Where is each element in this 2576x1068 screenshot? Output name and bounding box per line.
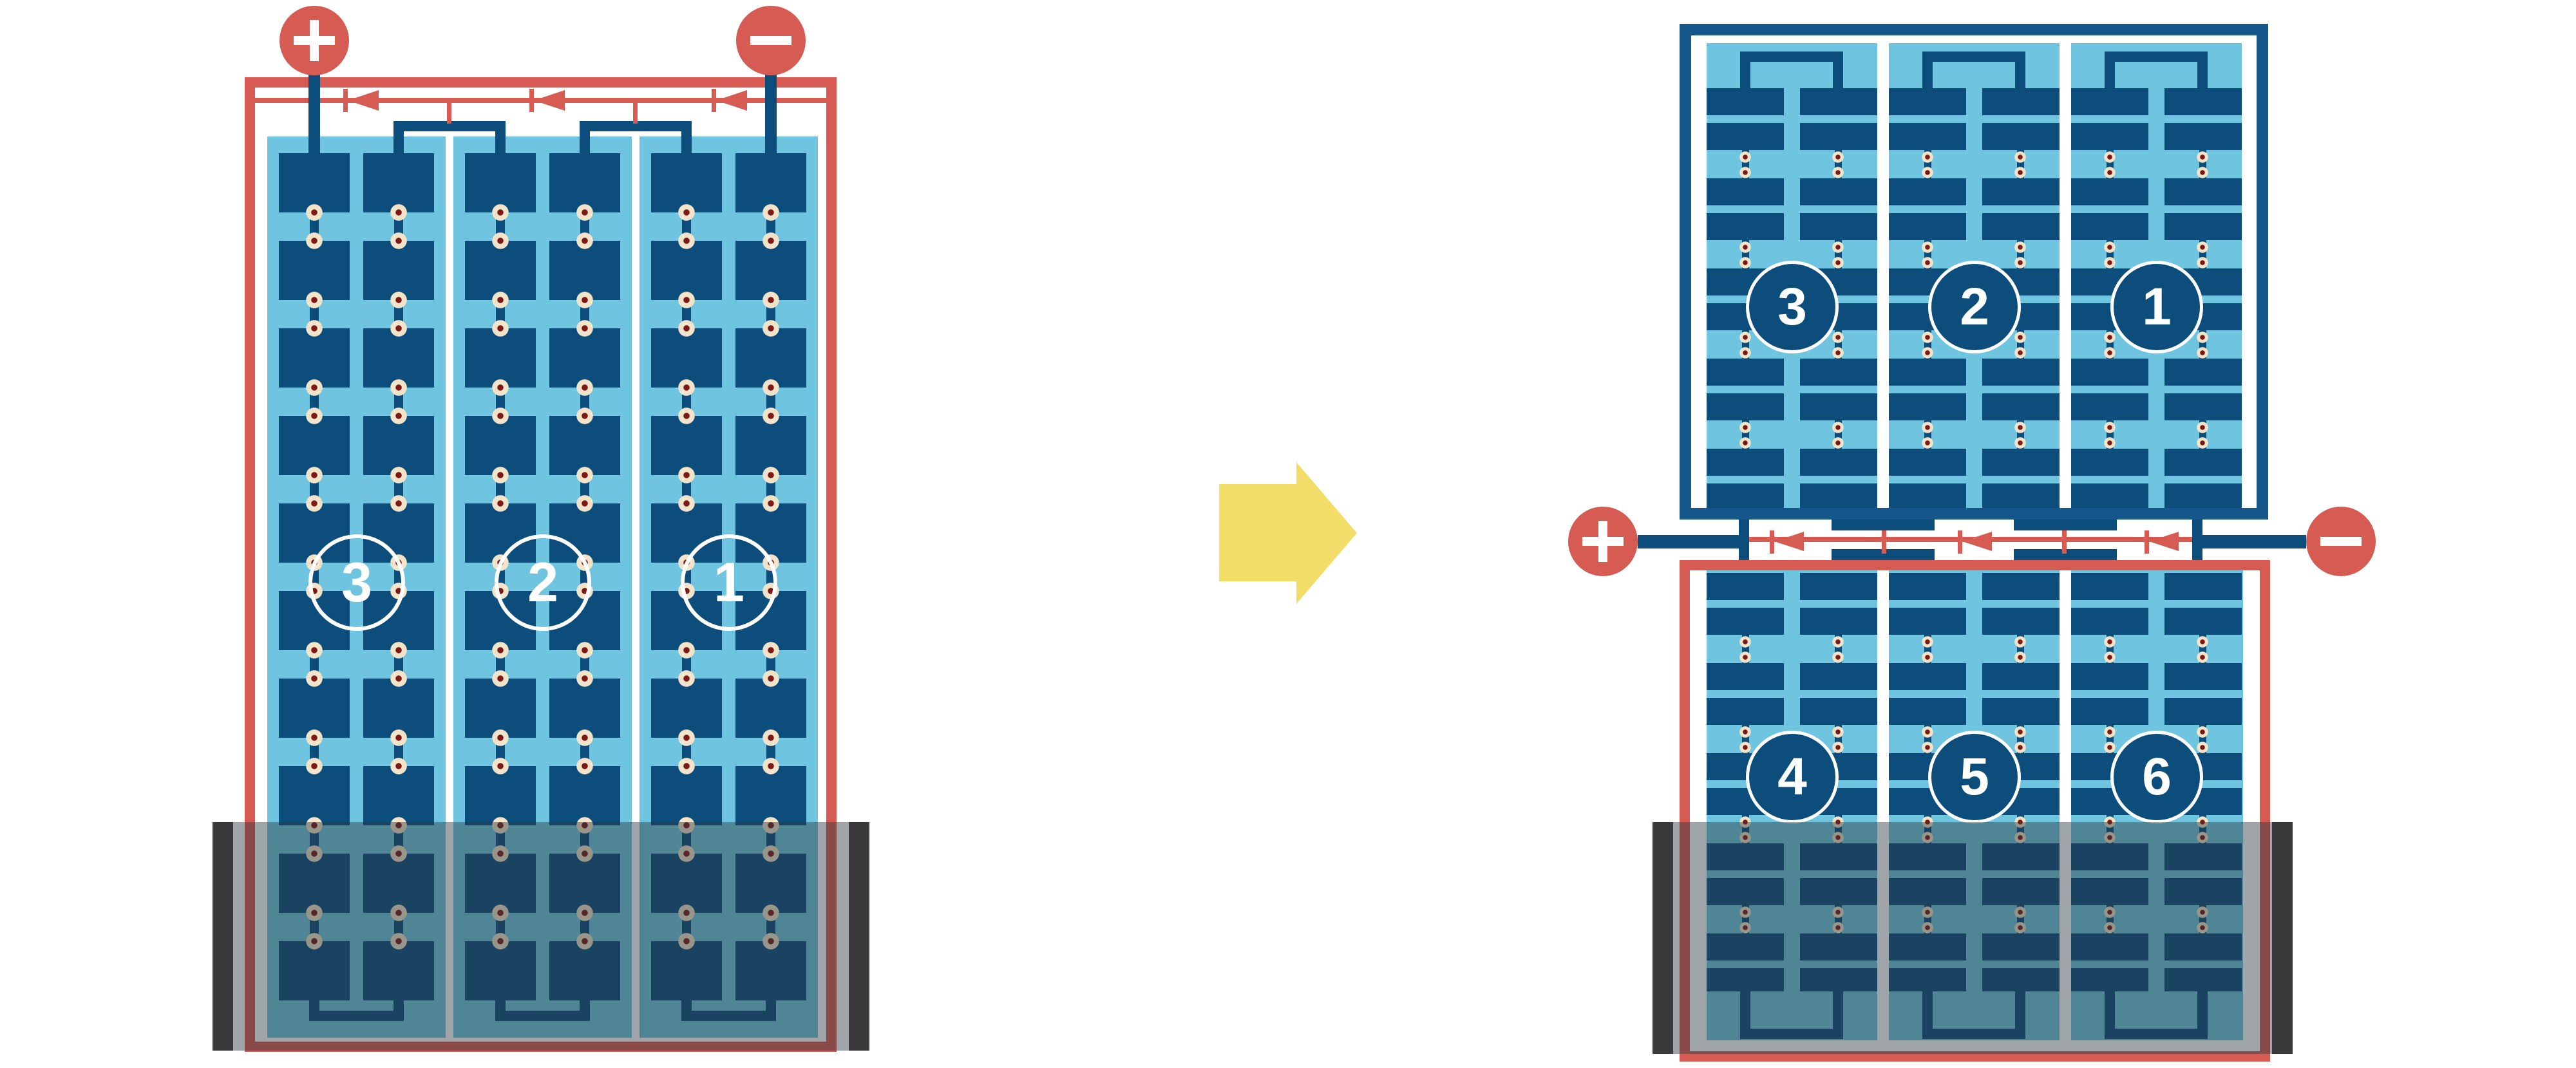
string-divider [1877,43,1889,508]
string-label-circle: 1 [2110,261,2203,353]
positive-terminal [279,6,349,75]
diode-bus-stub [633,100,638,124]
string-divider [2060,43,2071,508]
shade-overlay [1653,822,2293,1054]
shade-bar-end-cap [1653,822,1673,1054]
positive-terminal [1568,507,1638,576]
string-label-circle: 5 [1928,731,2021,823]
shade-bar-end-cap [849,822,869,1051]
diode-bus-junction-tick [1882,530,1886,554]
bypass-diode-cathode-bar [529,89,534,112]
bypass-diode-cathode-bar [343,89,348,112]
junction-stub-negative [2192,520,2202,560]
negative-terminal [736,6,806,75]
string-label-circle: 3 [308,534,405,631]
string-label-circle: 4 [1746,731,1839,823]
string-bridge-connector [580,121,692,164]
arrow-head [1296,462,1357,604]
string-top-connector [1922,52,2025,88]
shade-bar-end-cap [2272,822,2293,1054]
string-label-circle: 1 [681,534,777,631]
arrow-body [1219,484,1296,581]
diode-bus-stub [447,100,451,124]
diode-bus-junction-tick [2062,530,2067,554]
string-label-circle: 3 [1746,261,1839,353]
solar-module-wiring-diagram: 3 2 1 3 2 1 [0,0,2576,1068]
bypass-diode-cathode-bar [712,89,716,112]
minus-icon [750,36,791,45]
string-top-connector [2105,52,2208,88]
string-label-circle: 2 [495,534,591,631]
shade-bar-end-cap [213,822,233,1051]
bypass-diode-cathode-bar [2145,530,2149,554]
minus-icon [2320,537,2362,546]
positive-terminal-wire [1638,535,1741,548]
bypass-diode-icon [1962,532,1992,551]
bypass-diode-icon [348,90,379,111]
bypass-diode-icon [534,90,565,111]
negative-terminal [2306,507,2376,576]
string-label-circle: 2 [1928,261,2021,353]
positive-terminal-wire [308,61,320,183]
string-label-circle: 6 [2110,731,2203,823]
shade-overlay [213,822,869,1051]
negative-terminal-wire [765,61,777,183]
plus-icon [1598,521,1607,562]
junction-tab-top [2014,520,2117,530]
bypass-diode-icon [716,90,747,111]
junction-tab-top [1832,520,1935,530]
bypass-diode-icon [1774,532,1804,551]
plus-icon [310,20,319,61]
string-bridge-connector [393,121,506,164]
bypass-diode-cathode-bar [1770,530,1774,554]
negative-terminal-wire [2202,535,2306,548]
string-top-connector [1740,52,1843,88]
bypass-diode-icon [2149,532,2179,551]
bypass-diode-cathode-bar [1958,530,1962,554]
